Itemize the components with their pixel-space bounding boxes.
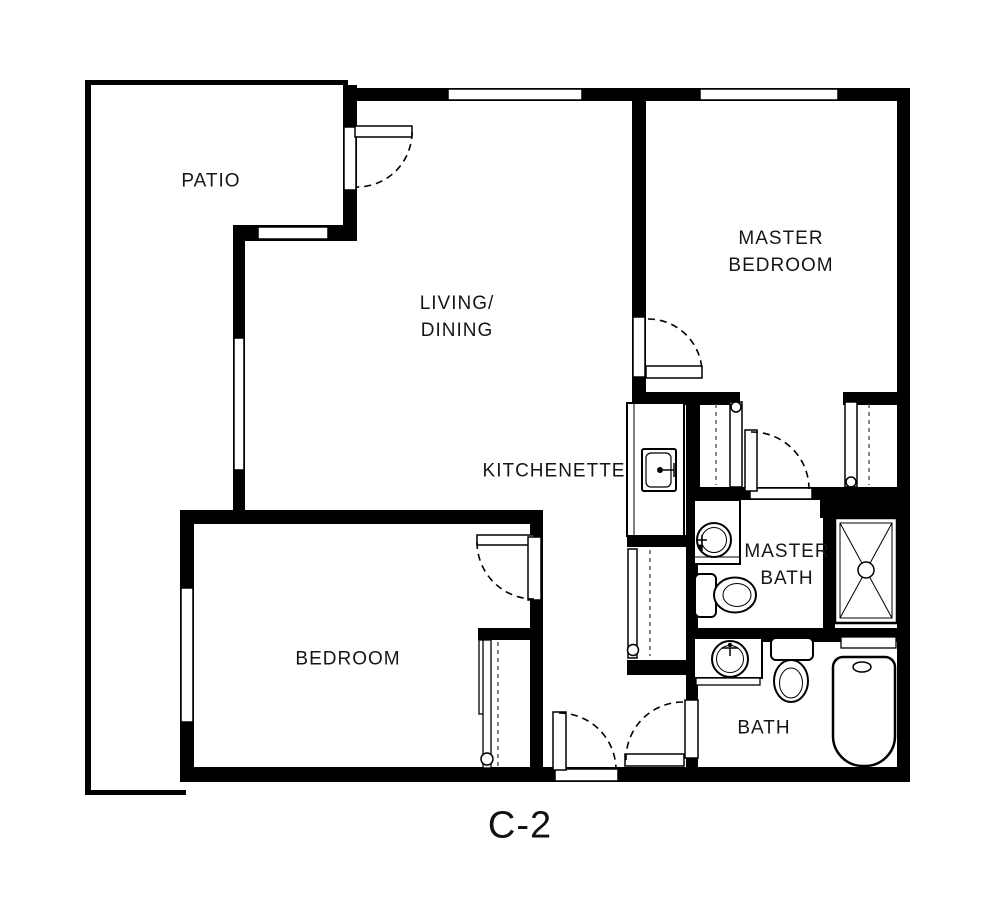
bath-vanity [694, 638, 762, 685]
master-bath-vanity [694, 500, 740, 564]
master-bath-label-line1: MASTER [744, 538, 829, 565]
kitchenette-sink-icon [642, 449, 676, 491]
entry-door [553, 712, 618, 781]
window-top-master-bedroom [700, 89, 838, 100]
window-patio-wall [258, 227, 328, 239]
kitchenette-counter [627, 403, 684, 536]
hall-closet [628, 549, 651, 658]
window-top-living [448, 89, 582, 100]
bedroom-closet [479, 640, 498, 768]
bath-door [625, 700, 698, 766]
master-bedroom-door [633, 317, 702, 378]
plan-code-label: C-2 [488, 805, 552, 848]
master-bedroom-label: MASTER BEDROOM [728, 225, 833, 279]
patio-label: PATIO [181, 168, 240, 195]
master-bath-label: MASTER BATH [744, 538, 829, 592]
master-bedroom-label-line2: BEDROOM [728, 252, 833, 279]
floor-plan: PATIO LIVING/ DINING MASTER BEDROOM KITC… [0, 0, 995, 917]
bath-label: BATH [737, 715, 790, 742]
living-dining-label-line1: LIVING/ [420, 290, 495, 317]
master-bedroom-label-line1: MASTER [728, 225, 833, 252]
master-bath-sink-icon [697, 523, 731, 557]
bedroom-label: BEDROOM [295, 646, 400, 673]
bath-sink-icon [712, 641, 748, 677]
master-closet-right [845, 402, 869, 487]
master-bath-label-line2: BATH [744, 565, 829, 592]
master-bath-door [745, 430, 812, 499]
kitchenette-label: KITCHENETTE [483, 458, 626, 485]
master-closet-left [716, 402, 742, 487]
bathtub-icon [833, 637, 896, 766]
living-dining-label-line2: DINING [420, 317, 495, 344]
window-living-west [234, 338, 244, 470]
living-dining-label: LIVING/ DINING [420, 290, 495, 344]
window-bedroom-west [181, 588, 193, 722]
bedroom-door [477, 535, 541, 600]
patio-door [344, 126, 412, 190]
shower-icon [835, 518, 897, 623]
bath-toilet-icon [771, 638, 813, 702]
